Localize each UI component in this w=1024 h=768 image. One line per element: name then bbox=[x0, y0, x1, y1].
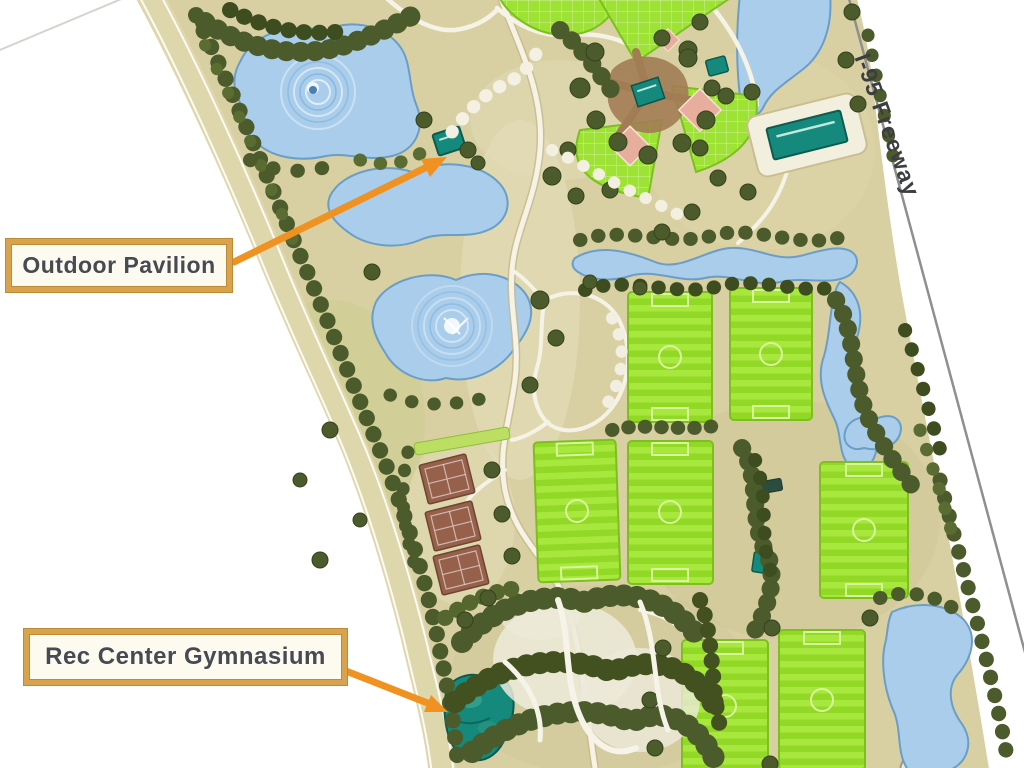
callout-outdoor-pavilion-label: Outdoor Pavilion bbox=[22, 252, 215, 279]
soccer-field bbox=[628, 441, 713, 584]
callout-rec-center-label: Rec Center Gymnasium bbox=[45, 643, 326, 671]
soccer-field bbox=[779, 630, 865, 768]
soccer-field bbox=[628, 292, 712, 422]
callout-rec-center: Rec Center Gymnasium bbox=[24, 629, 347, 685]
park-master-plan: Outdoor Pavilion Rec Center Gymnasium I-… bbox=[0, 0, 1024, 768]
callout-outdoor-pavilion: Outdoor Pavilion bbox=[6, 239, 232, 292]
soccer-field bbox=[534, 440, 621, 583]
soccer-field bbox=[730, 288, 812, 420]
soccer-field bbox=[820, 462, 908, 598]
